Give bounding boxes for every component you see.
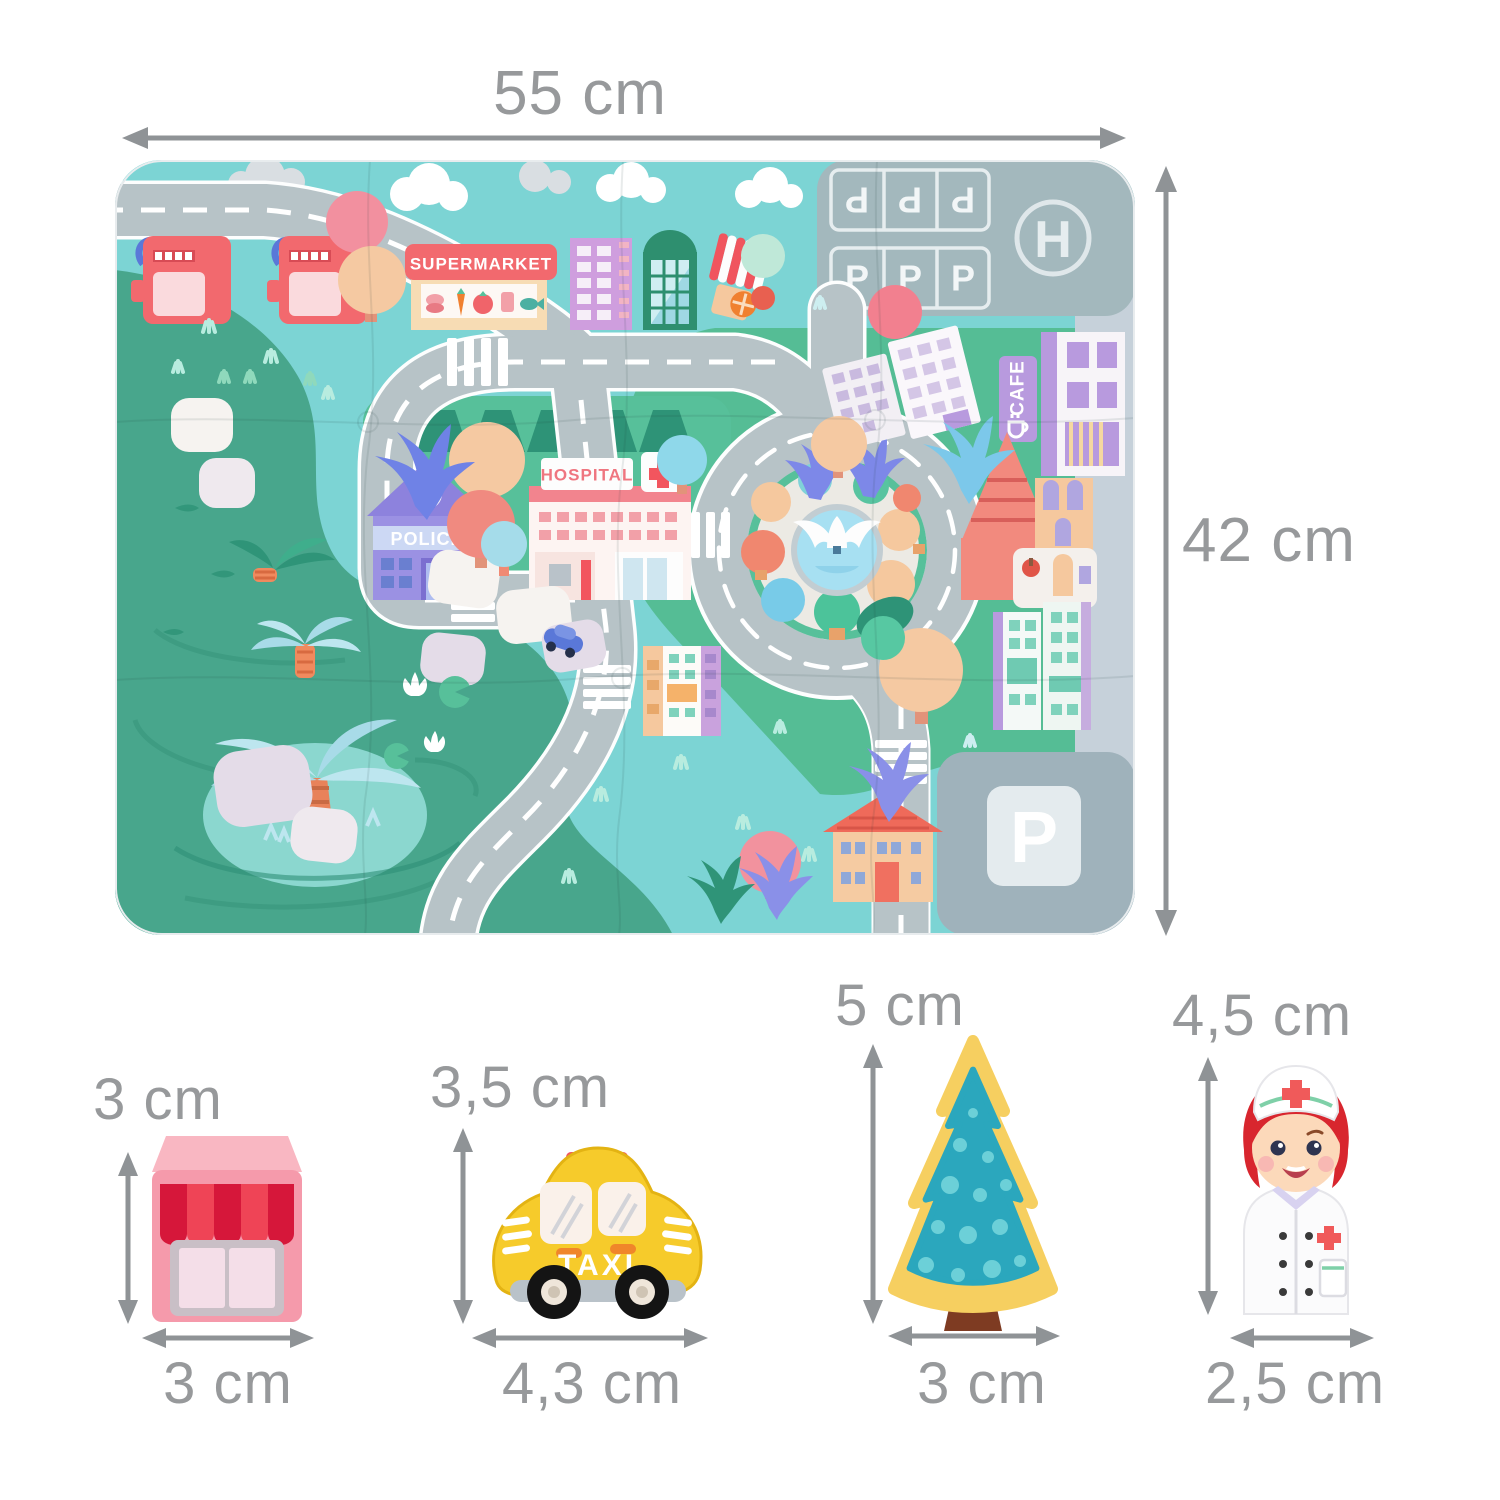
taxi-height-arrow <box>447 1126 479 1326</box>
parking-letter: P <box>1010 798 1058 878</box>
shop-width-label: 3 cm <box>128 1350 328 1417</box>
toy-taxi: TAXI <box>478 1122 718 1322</box>
toy-shop <box>142 1128 312 1328</box>
svg-text:P: P <box>951 180 975 221</box>
shop-height-label: 3 cm <box>58 1066 258 1133</box>
product-dimension-diagram: 55 cm 42 cm <box>0 0 1500 1500</box>
play-mat: P P P P <box>115 160 1135 935</box>
tree-height-label: 5 cm <box>800 972 1000 1039</box>
taxi-width-label: 4,3 cm <box>467 1350 717 1417</box>
tree-height-arrow <box>857 1042 889 1326</box>
nurse-height-arrow <box>1192 1055 1224 1317</box>
tree-width-label: 3 cm <box>882 1350 1082 1417</box>
parking-sign-square: P <box>937 752 1135 935</box>
svg-text:P: P <box>898 180 922 221</box>
svg-text:P: P <box>845 180 869 221</box>
toy-nurse <box>1226 1048 1366 1318</box>
fountain <box>791 504 883 596</box>
apartment-building <box>643 646 721 736</box>
parking-area: P P P P P P H <box>817 160 1135 316</box>
helipad-letter: H <box>1034 211 1072 269</box>
mat-width-label: 55 cm <box>430 58 730 129</box>
mat-width-arrow <box>118 120 1130 156</box>
nurse-height-label: 4,5 cm <box>1137 982 1387 1049</box>
hospital-sign: HOSPITAL <box>541 466 634 485</box>
shop-height-arrow <box>112 1150 144 1326</box>
green-tower <box>643 230 697 330</box>
taxi-height-label: 3,5 cm <box>395 1054 645 1121</box>
mat-height-label: 42 cm <box>1182 505 1442 576</box>
nurse-width-label: 2,5 cm <box>1170 1350 1420 1417</box>
supermarket-sign: SUPERMARKET <box>410 255 552 274</box>
supermarket-building: SUPERMARKET <box>405 244 557 330</box>
mat-height-arrow <box>1148 162 1184 940</box>
svg-text:P: P <box>951 258 975 299</box>
nurse-hat <box>1254 1066 1338 1120</box>
tree-width-arrow <box>886 1320 1062 1352</box>
nurse-pocket <box>1320 1260 1346 1296</box>
cafe-sign: CAFE <box>1008 360 1029 416</box>
toy-tree <box>888 1035 1058 1335</box>
shop-awning <box>160 1184 294 1245</box>
